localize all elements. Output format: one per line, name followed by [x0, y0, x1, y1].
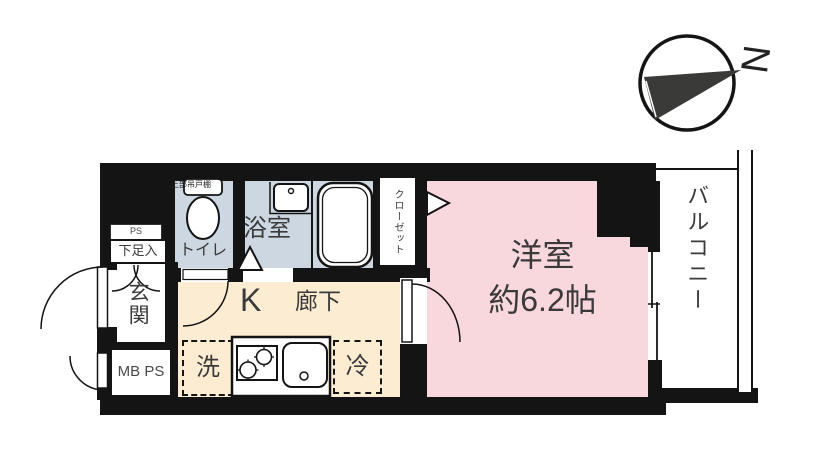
wall-pillar — [597, 181, 648, 237]
pipe-space-label: PS — [130, 227, 142, 237]
wall-hall-room — [400, 342, 427, 397]
entrance-door-arc — [41, 267, 103, 329]
compass-needle-seam — [646, 81, 656, 117]
meter-box: MB PS — [110, 348, 172, 397]
north-label: N — [731, 42, 776, 75]
wall-bottom — [100, 397, 666, 415]
closet-box: クローゼット — [378, 176, 417, 267]
washer-label: 洗 — [196, 355, 220, 381]
room-size-label: 約6.2帖 — [455, 278, 630, 323]
pipe-space-box: PS — [110, 224, 162, 240]
wall-right-top — [648, 181, 660, 252]
balcony-label: バルコニー — [684, 184, 708, 314]
bath-label: 浴室 — [243, 216, 291, 242]
washer-space: 洗 — [182, 340, 234, 396]
shoe-cabinet-label: 下足入 — [118, 244, 157, 258]
room-title: 洋室 約6.2帖 — [455, 233, 630, 323]
compass-needle — [644, 70, 741, 120]
compass-circle — [640, 36, 734, 130]
corridor-label: 廊下 — [295, 289, 341, 314]
balcony-railing — [737, 150, 753, 392]
fridge-label: 冷 — [346, 354, 370, 380]
window-opening — [648, 252, 660, 360]
entrance-label: 玄関 — [126, 281, 149, 327]
wall-pillar-step — [630, 237, 648, 247]
upper-cabinet-label: 上部吊戸棚 — [171, 181, 211, 190]
room-name-label: 洋室 — [455, 233, 630, 278]
meter-box-label: MB PS — [118, 364, 165, 381]
closet-label: クローゼット — [392, 189, 403, 255]
shoe-cabinet-box: 下足入 — [109, 239, 167, 264]
entrance-door-leaf — [98, 267, 108, 328]
toilet-label: トイレ — [179, 242, 227, 260]
kitchen-label: K — [240, 283, 261, 318]
balcony-top-line — [656, 168, 740, 170]
floor-plan: PS 下足入 MB PS クローゼット 洗 冷 — [0, 0, 834, 454]
room-door-opening — [400, 278, 427, 344]
room-door-leaf — [402, 280, 412, 342]
fridge-space: 冷 — [333, 340, 382, 394]
